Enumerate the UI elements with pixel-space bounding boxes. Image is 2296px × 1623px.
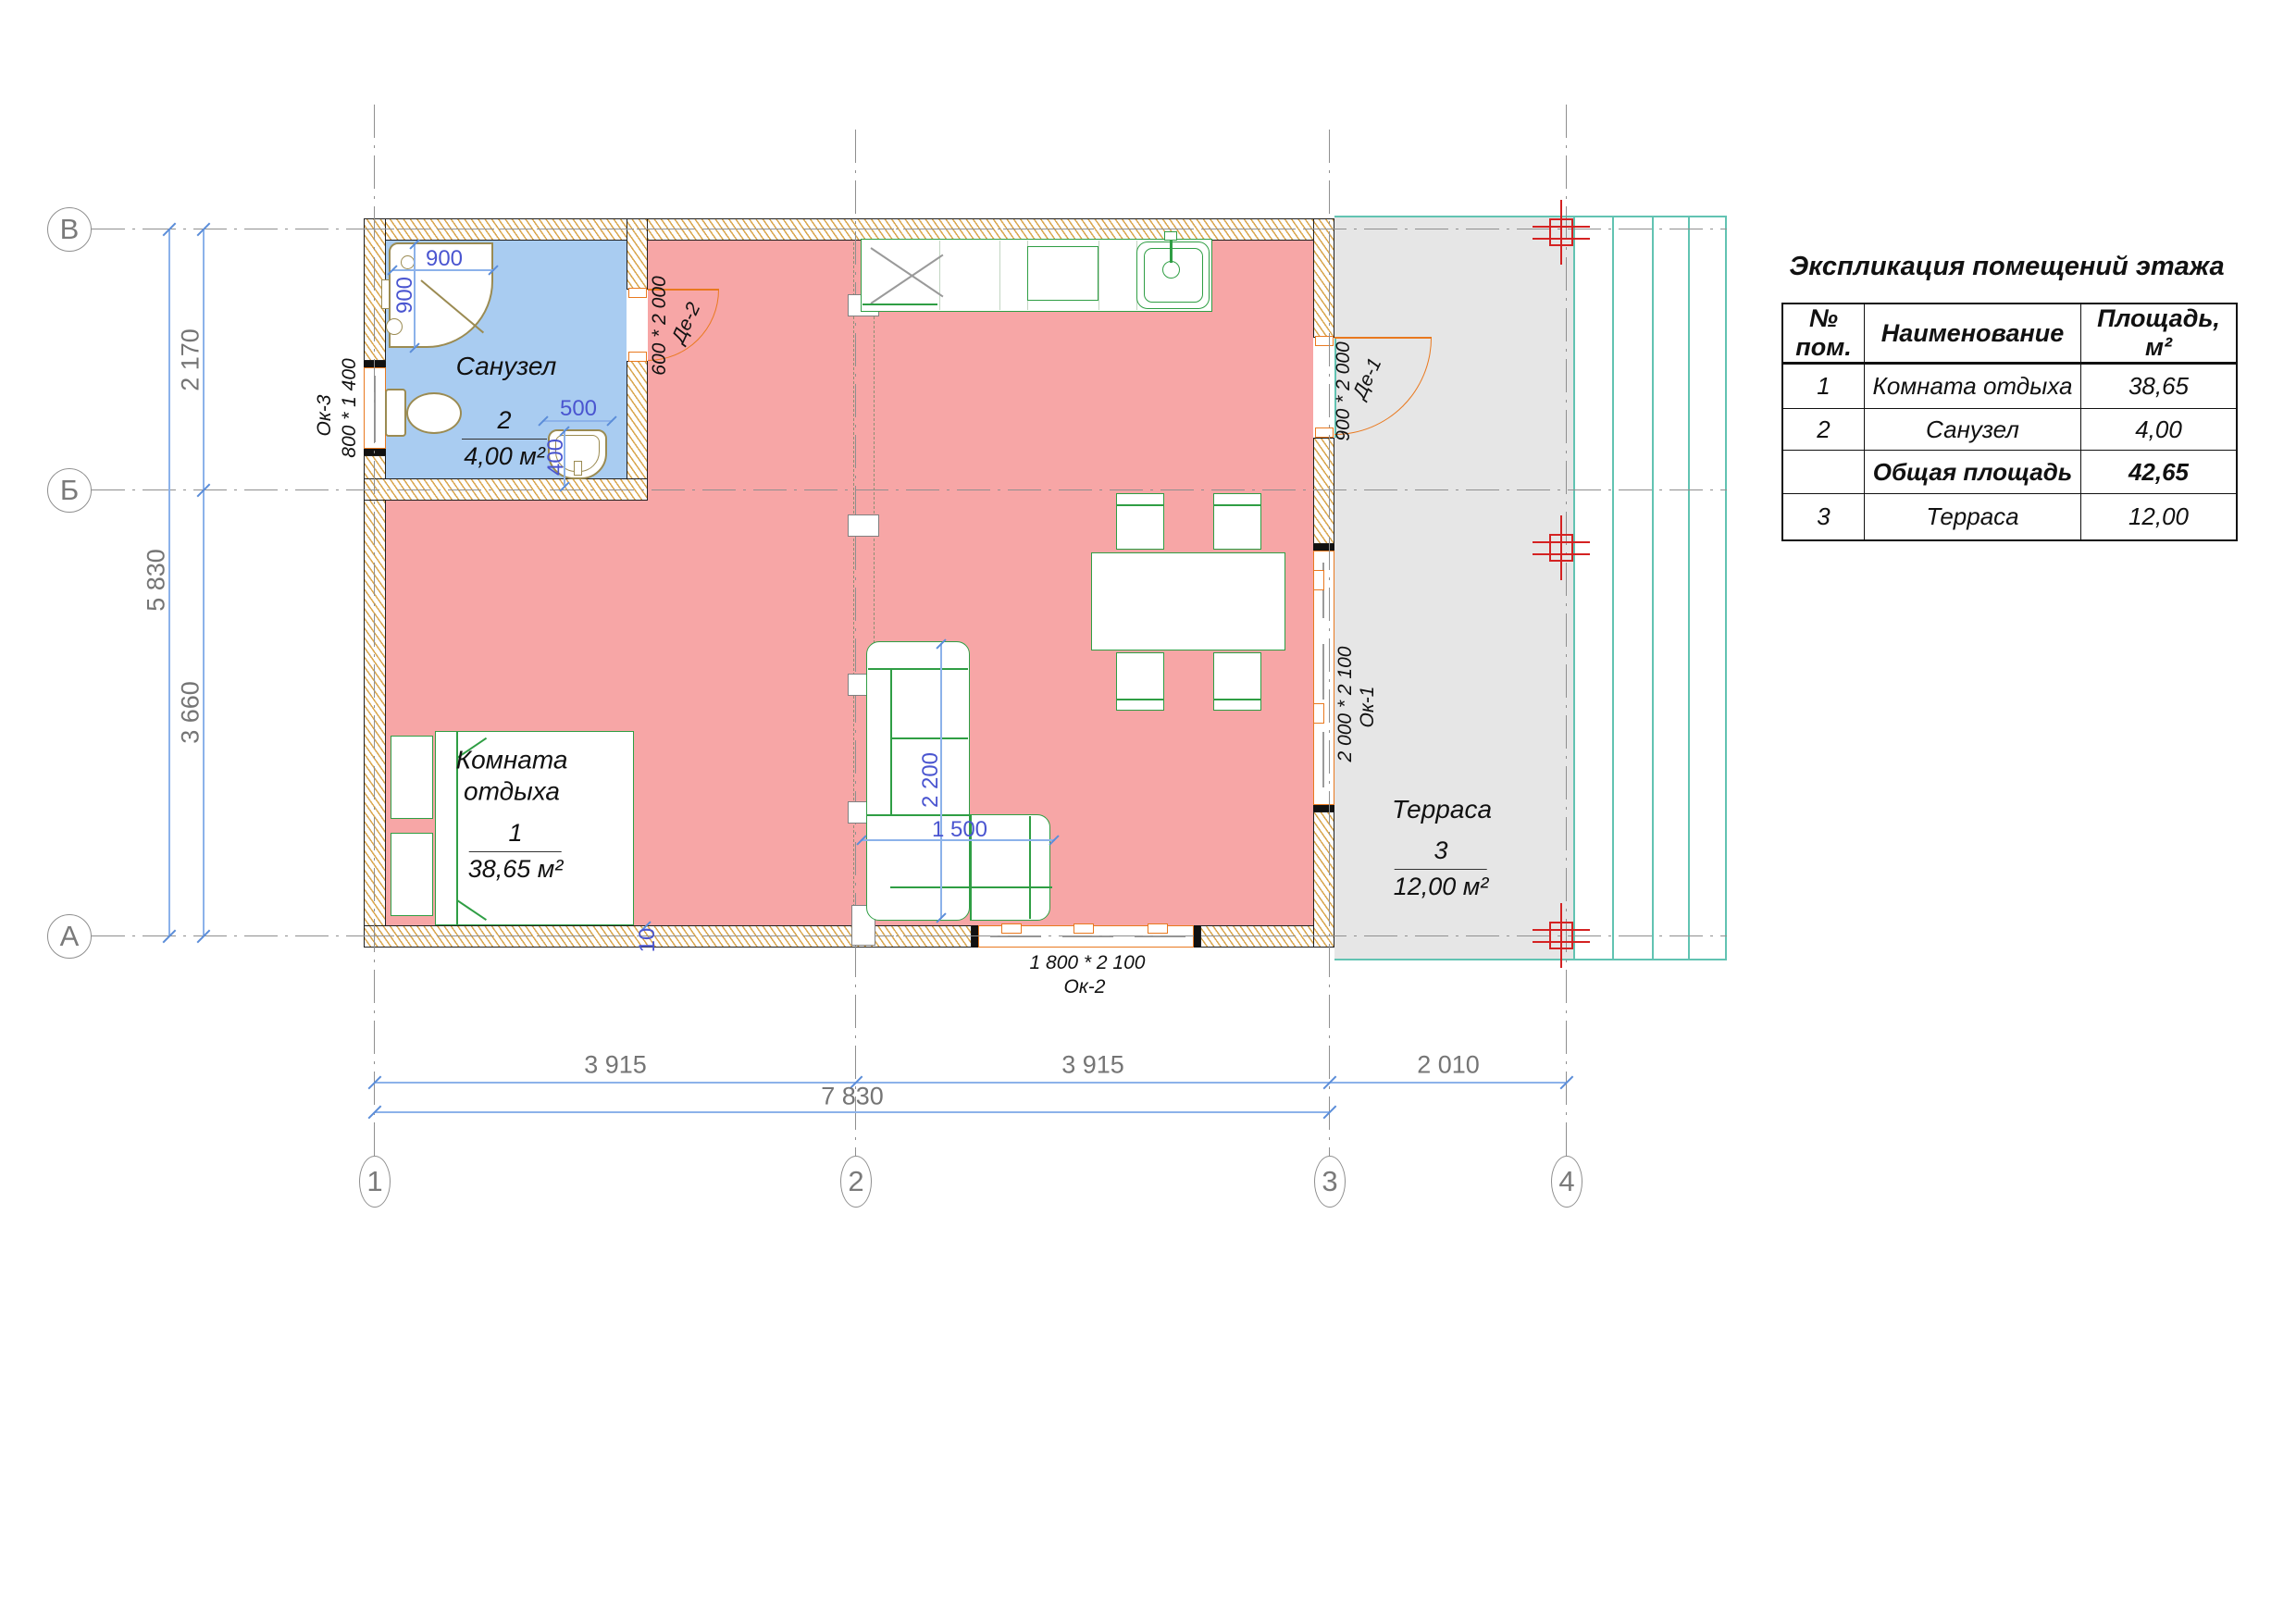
- dim-basin-width: 500: [560, 396, 597, 422]
- axis-bubble-3: 3: [1314, 1156, 1346, 1208]
- label-ok3-code: Ок-3: [314, 395, 336, 437]
- dim-shower-depth: 900: [392, 277, 418, 314]
- axis-bubble-4: 4: [1551, 1156, 1582, 1208]
- explication-title: Экспликация помещений этажа: [1781, 252, 2232, 282]
- window-ok2-mark: [1148, 923, 1168, 934]
- room-number-cell: 2: [1782, 409, 1865, 451]
- room-number-cell: 1: [1782, 364, 1865, 409]
- dim-left-inner-bottom: 3 660: [177, 681, 205, 744]
- chair: [1116, 493, 1164, 550]
- room-area-cell: 38,65: [2081, 364, 2238, 409]
- label-ok1-code: Ок-1: [1357, 687, 1379, 728]
- explication-row: 2 Санузел 4,00: [1782, 409, 2237, 451]
- terrace-area-tag: 3 12,00 м²: [1394, 836, 1489, 903]
- dim-bottom-span1: 3 915: [584, 1051, 647, 1080]
- explication-header-row: № пом. Наименование Площадь, м²: [1782, 304, 2237, 364]
- wall-right-upper: [1313, 218, 1334, 338]
- chair: [1116, 652, 1164, 711]
- axis-bubble-2: 2: [840, 1156, 872, 1208]
- dim-shower-width: 900: [426, 246, 463, 272]
- kitchen-faucet: [1162, 261, 1180, 279]
- window-ok1-mark: [1313, 703, 1324, 724]
- nightstand: [391, 736, 433, 819]
- bathroom-area-tag: 2 4,00 м²: [462, 405, 547, 473]
- floor-plan-drawing: 900 900 500 400 2 200 1 500 10 800 * 1 4…: [0, 0, 2296, 1623]
- col-header-name: Наименование: [1865, 304, 2081, 364]
- label-ok2-code: Ок-2: [1064, 976, 1106, 998]
- dim-basin-depth: 400: [543, 439, 569, 476]
- dim-bottom-span2: 3 915: [1061, 1051, 1124, 1080]
- lounge-area-tag: 1 38,65 м²: [468, 818, 564, 886]
- chair: [1213, 493, 1261, 550]
- room-name-cell: Комната отдыха: [1865, 364, 2081, 409]
- axis-line-V: [92, 229, 1727, 229]
- room-number-cell: 3: [1782, 494, 1865, 540]
- dim-sofa-length: 2 200: [918, 752, 944, 808]
- room-name-cell: Санузел: [1865, 409, 2081, 451]
- cooktop: [1027, 246, 1098, 301]
- explication-row: 3 Терраса 12,00: [1782, 494, 2237, 540]
- terrace-name: Терраса: [1392, 794, 1492, 825]
- axis-bubble-A: А: [47, 914, 92, 959]
- window-ok1-jamb: [1313, 544, 1334, 551]
- axis-line-A: [92, 935, 1727, 936]
- dim-bottom-span3: 2 010: [1417, 1051, 1480, 1080]
- room-area-cell: 12,00: [2081, 494, 2238, 540]
- explication-total-row: Общая площадь 42,65: [1782, 451, 2237, 494]
- dim-left-outer: 5 830: [143, 549, 171, 612]
- explication-row: 1 Комната отдыха 38,65: [1782, 364, 2237, 409]
- room-name-cell: Терраса: [1865, 494, 2081, 540]
- col-header-area: Площадь, м²: [2081, 304, 2238, 364]
- label-de1-size: 900 * 2 000: [1333, 341, 1355, 440]
- label-ok1-size: 2 000 * 2 100: [1334, 647, 1357, 762]
- total-label-cell: Общая площадь: [1865, 451, 2081, 494]
- col-header-number: № пом.: [1782, 304, 1865, 364]
- axis-bubble-V: В: [47, 207, 92, 252]
- room-number-cell: [1782, 451, 1865, 494]
- axis-line-B: [92, 489, 1727, 490]
- dim-bottom-total: 7 830: [821, 1083, 884, 1111]
- explication-table: № пом. Наименование Площадь, м² 1 Комнат…: [1781, 303, 2238, 541]
- window-ok2-mark: [1001, 923, 1022, 934]
- window-ok1-jamb: [1313, 805, 1334, 811]
- label-de2-size: 600 * 2 000: [649, 276, 671, 375]
- dining-table: [1091, 552, 1285, 650]
- label-ok2-size: 1 800 * 2 100: [1030, 952, 1146, 974]
- axis-line-3: [1329, 130, 1330, 1156]
- window-ok1-mark: [1313, 570, 1324, 590]
- axis-bubble-B: Б: [47, 468, 92, 513]
- axis-line-1: [374, 105, 375, 1156]
- wall-right-lower: [1313, 811, 1334, 948]
- dim-wall-offset: 10: [635, 928, 661, 953]
- dim-left-inner-top: 2 170: [177, 328, 205, 391]
- label-ok3-size: 800 * 1 400: [339, 358, 361, 457]
- nightstand: [391, 833, 433, 916]
- axis-bubble-1: 1: [359, 1156, 391, 1208]
- room-area-cell: 4,00: [2081, 409, 2238, 451]
- total-area-cell: 42,65: [2081, 451, 2238, 494]
- dim-sofa-width: 1 500: [932, 817, 987, 843]
- window-ok2-mark: [1074, 923, 1094, 934]
- bathroom-name: Санузел: [456, 351, 557, 382]
- wall-right-mid: [1313, 438, 1334, 544]
- chair: [1213, 652, 1261, 711]
- lounge-name: Комнатаотдыха: [456, 744, 568, 806]
- axis-line-4: [1566, 105, 1567, 1156]
- axis-line-2: [855, 130, 856, 1156]
